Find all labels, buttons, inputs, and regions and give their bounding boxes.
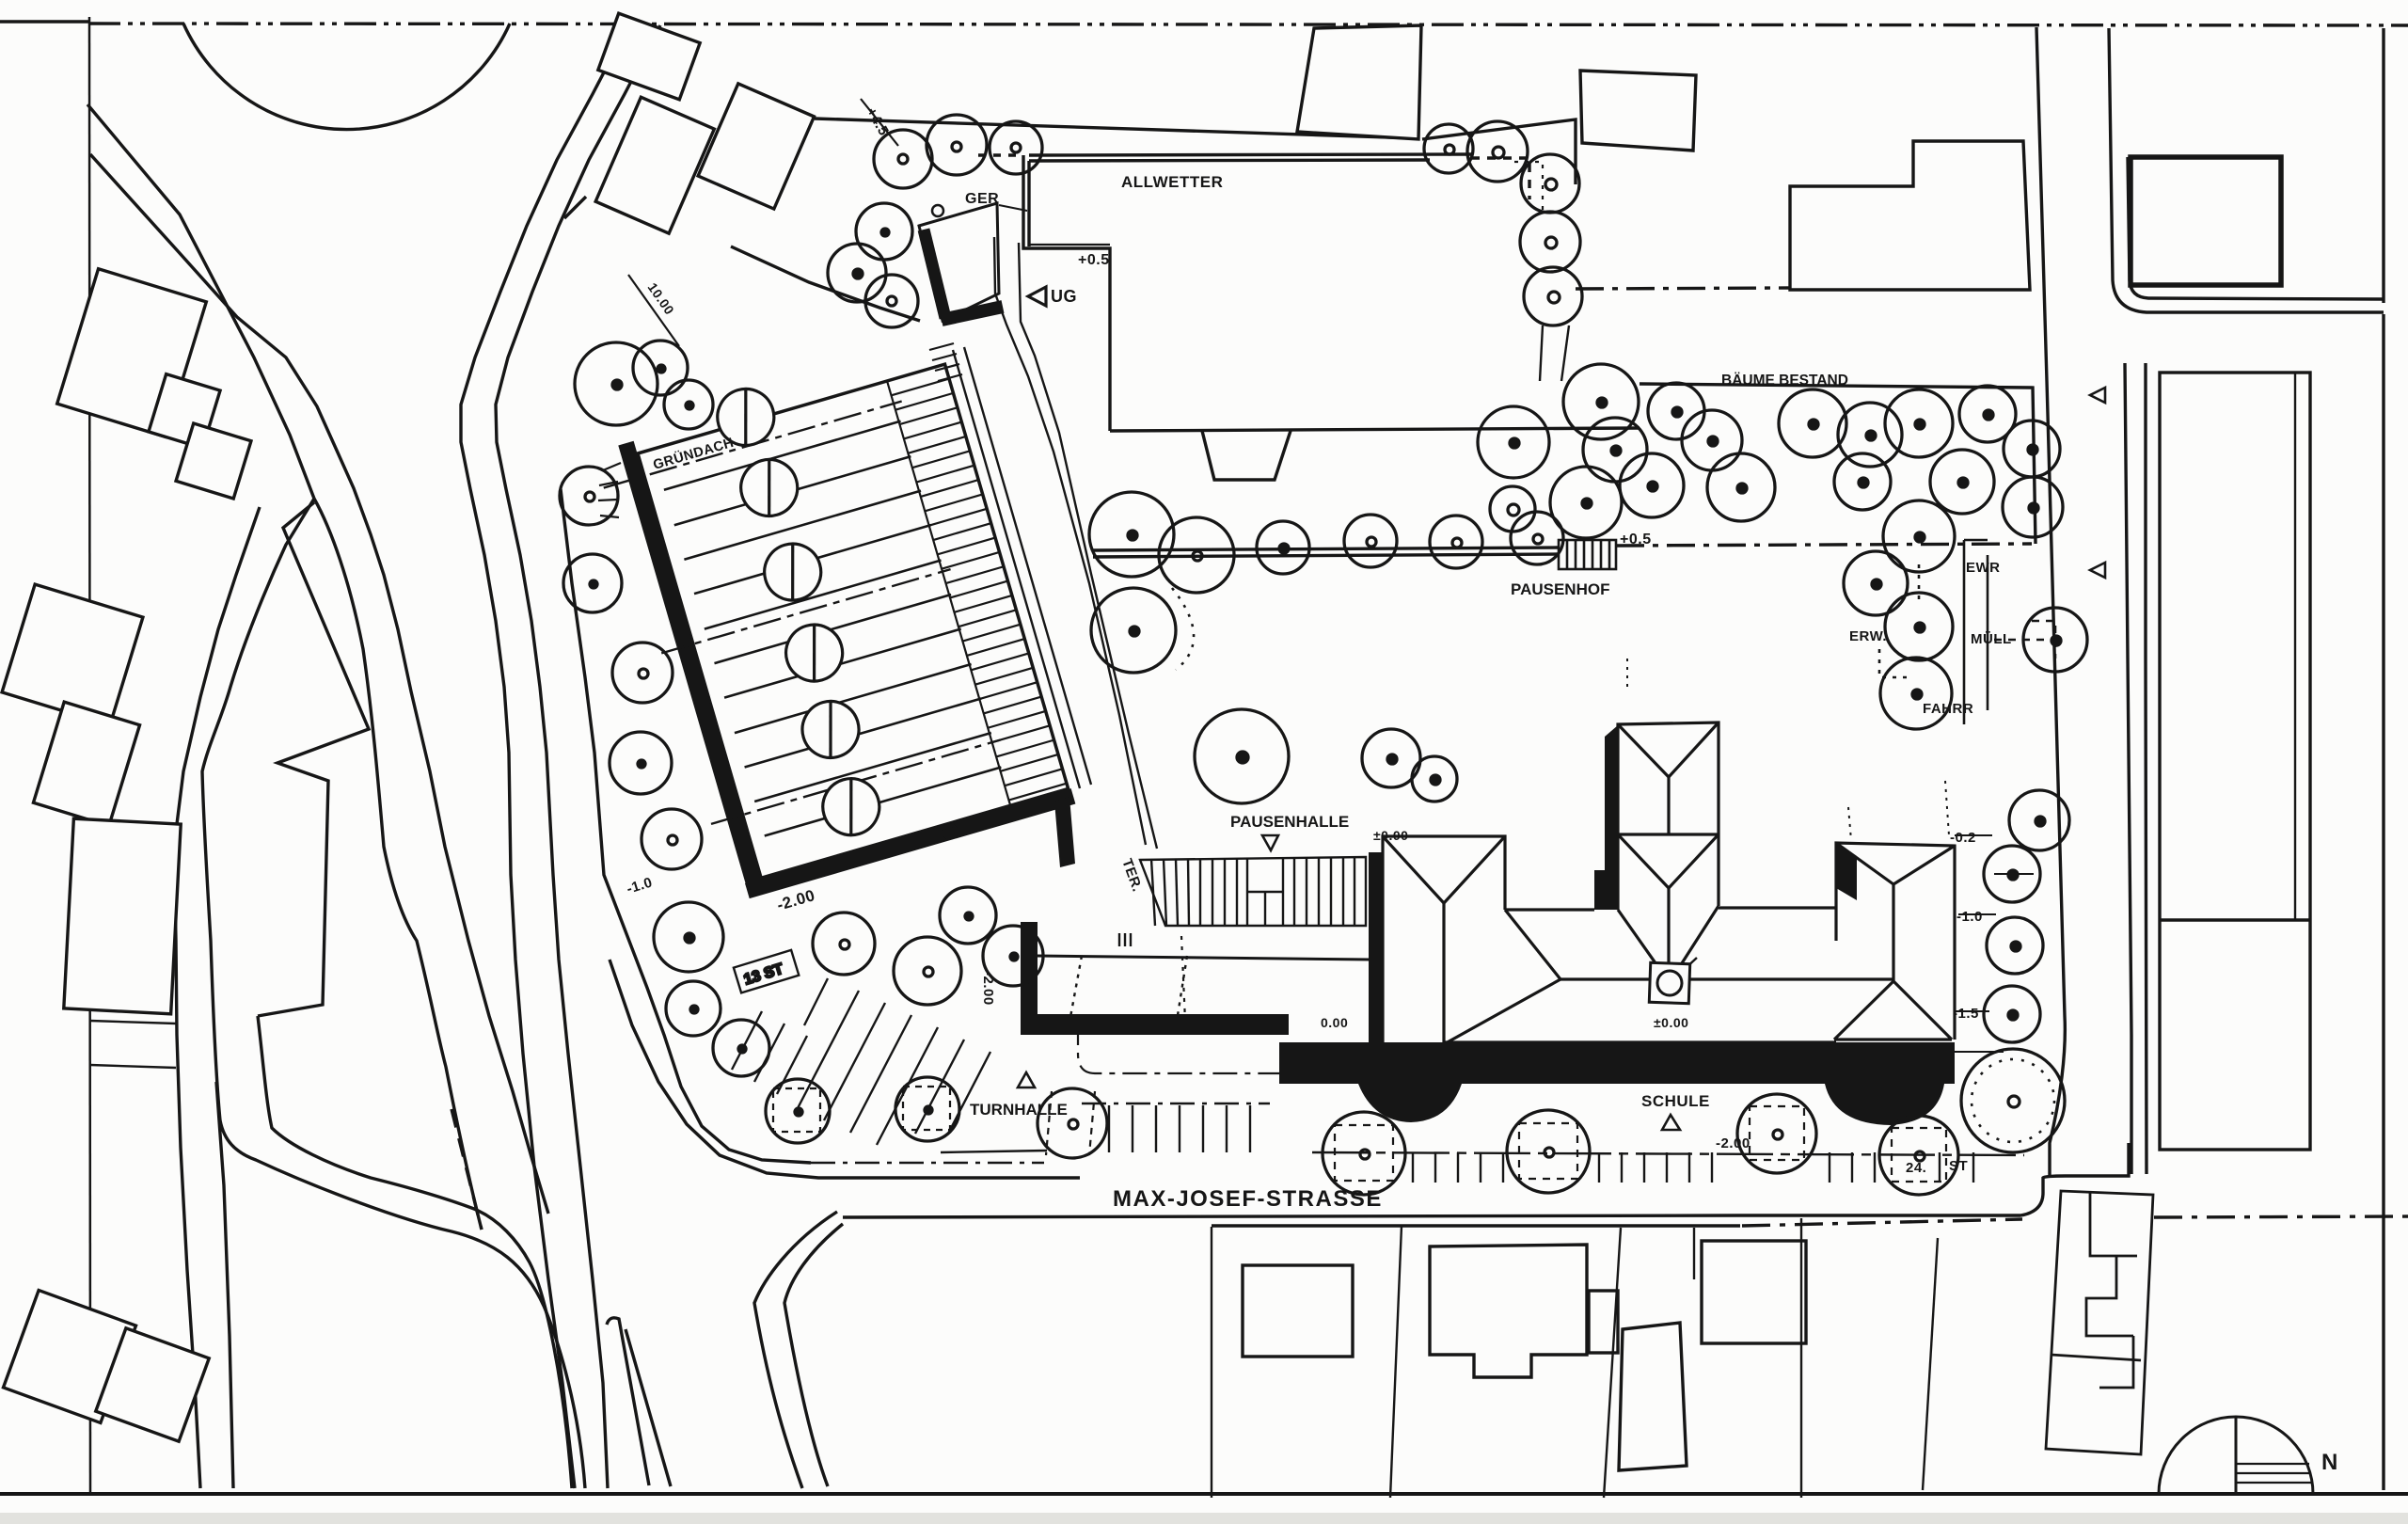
svg-text:ALLWETTER: ALLWETTER [1121,173,1223,191]
svg-text:ERW.: ERW. [1849,628,1887,644]
svg-text:GER: GER [965,191,999,207]
svg-text:±0.00: ±0.00 [1654,1015,1688,1030]
svg-text:PAUSENHALLE: PAUSENHALLE [1230,813,1349,831]
svg-text:UG: UG [1051,287,1077,306]
svg-text:+0.5: +0.5 [1620,532,1652,548]
svg-text:-2.00: -2.00 [980,971,996,1006]
svg-text:+0.5: +0.5 [1078,252,1110,268]
svg-text:ST: ST [1949,1158,1968,1174]
svg-text:BÄUME BESTAND: BÄUME BESTAND [1721,373,1848,389]
svg-text:N: N [2321,1450,2338,1475]
svg-text:FAHRR: FAHRR [1923,701,1973,717]
svg-text:MÜLL: MÜLL [1971,631,2012,647]
svg-text:EWR: EWR [1966,560,2001,576]
svg-text:-1.5: -1.5 [1953,1006,1979,1022]
svg-text:MAX-JOSEF-STRASSE: MAX-JOSEF-STRASSE [1113,1186,1383,1212]
svg-text:TURNHALLE: TURNHALLE [970,1101,1068,1119]
svg-text:24.: 24. [1906,1160,1926,1176]
svg-text:SCHULE: SCHULE [1641,1092,1710,1110]
svg-text:-1.0: -1.0 [1956,909,1983,925]
svg-text:-2.00: -2.00 [1716,1135,1751,1151]
svg-text:±0.00: ±0.00 [1373,828,1408,843]
svg-text:PAUSENHOF: PAUSENHOF [1511,580,1609,598]
svg-text:0.00: 0.00 [1321,1015,1348,1030]
svg-text:-0.2: -0.2 [1950,830,1976,846]
